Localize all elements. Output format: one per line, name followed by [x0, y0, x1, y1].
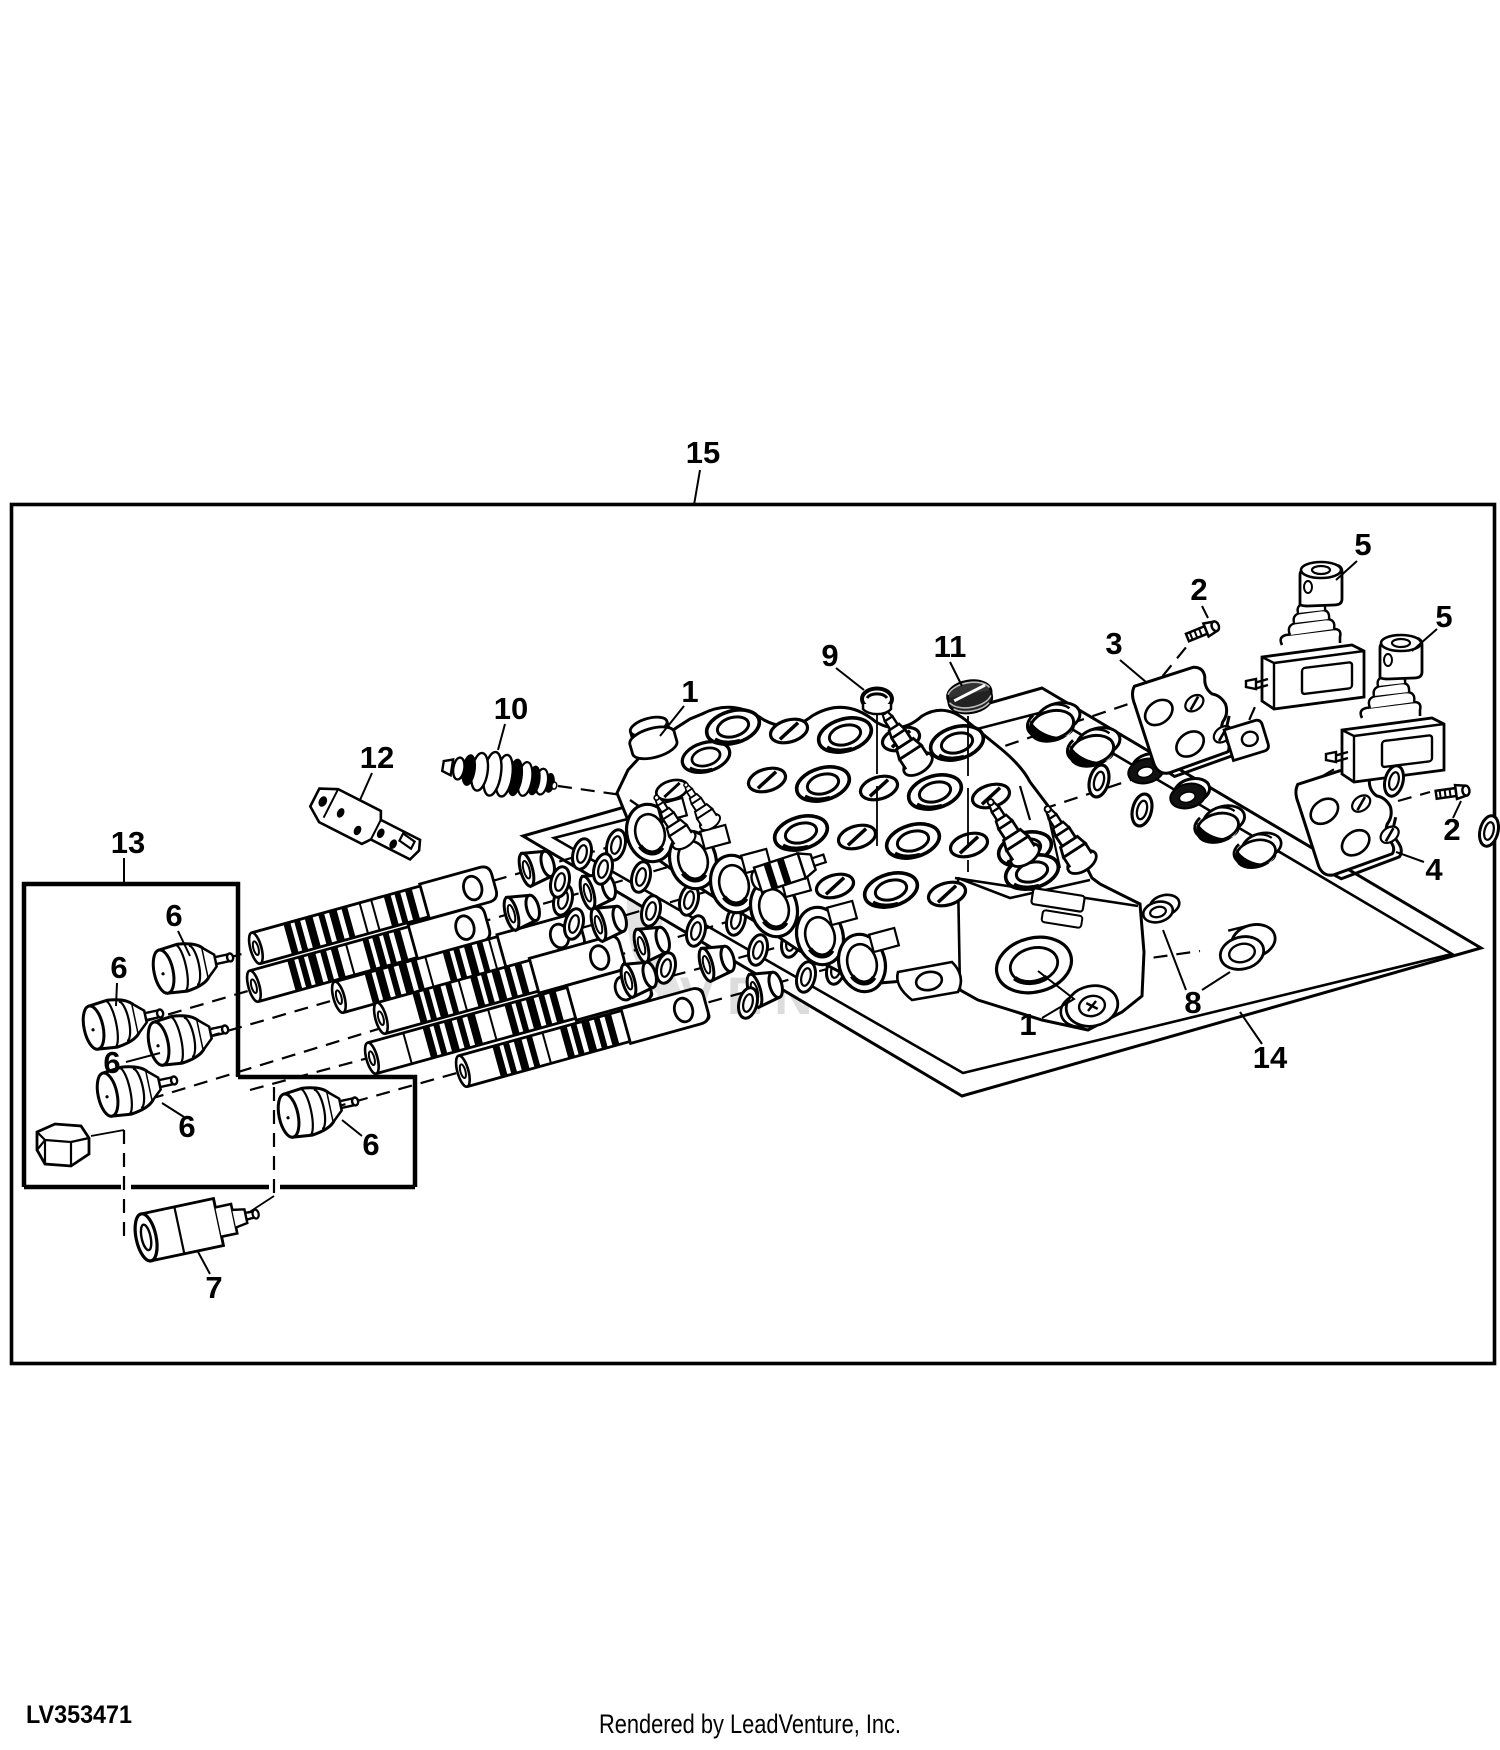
- svg-text:12: 12: [360, 740, 394, 775]
- svg-text:2: 2: [1443, 812, 1460, 847]
- svg-text:7: 7: [205, 1270, 222, 1305]
- svg-text:2: 2: [1190, 572, 1207, 607]
- svg-text:Rendered by LeadVenture, Inc.: Rendered by LeadVenture, Inc.: [599, 1709, 901, 1739]
- svg-text:1: 1: [681, 674, 698, 709]
- svg-text:3: 3: [1105, 626, 1122, 661]
- svg-text:LV353471: LV353471: [26, 1701, 132, 1729]
- svg-text:8: 8: [1184, 985, 1201, 1020]
- svg-text:9: 9: [821, 638, 838, 673]
- svg-text:6: 6: [362, 1127, 379, 1162]
- svg-text:10: 10: [494, 691, 528, 726]
- svg-text:14: 14: [1253, 1040, 1288, 1075]
- svg-text:6: 6: [110, 950, 127, 985]
- svg-text:15: 15: [686, 435, 720, 470]
- svg-text:5: 5: [1435, 599, 1452, 634]
- svg-text:11: 11: [934, 629, 967, 664]
- svg-text:5: 5: [1354, 527, 1371, 562]
- svg-text:1: 1: [1019, 1007, 1036, 1042]
- svg-text:6: 6: [103, 1045, 120, 1080]
- svg-text:13: 13: [111, 825, 145, 860]
- svg-text:4: 4: [1425, 852, 1443, 887]
- svg-text:6: 6: [165, 898, 182, 933]
